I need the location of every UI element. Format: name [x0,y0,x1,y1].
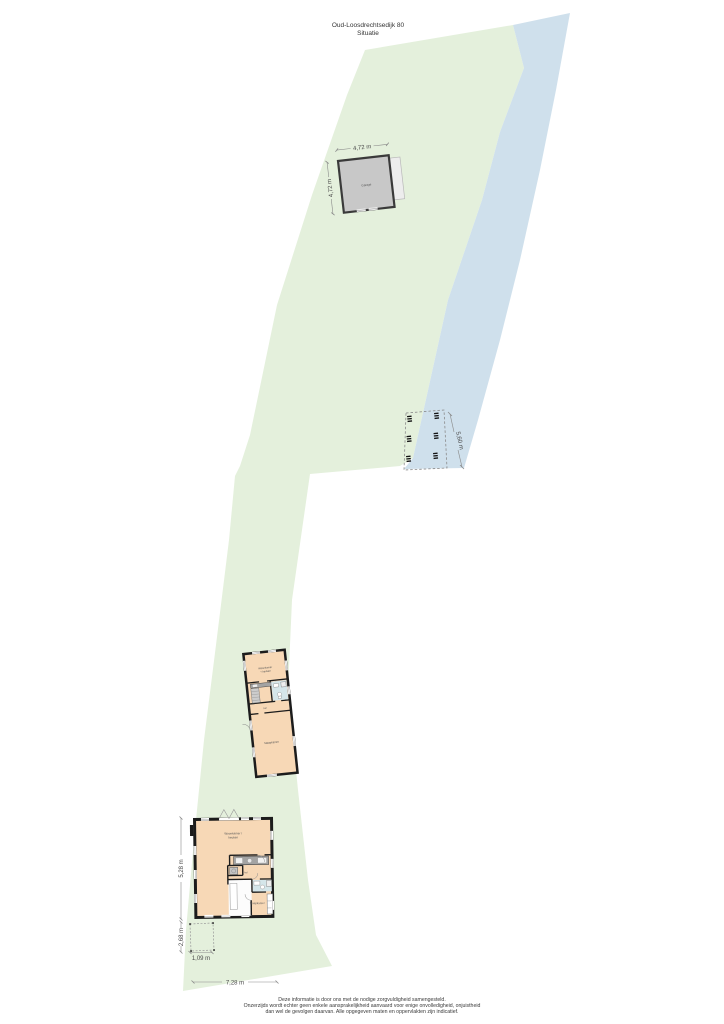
guest-bathroom [271,680,288,701]
main-house: Woonkamer / keuken hal Slaapkamer [190,809,274,918]
guest-bath-shower [281,682,286,687]
dim-side-label: 5,28 m [179,859,185,877]
terrace-dimension-bottom: 1,09 m [189,951,214,962]
kitchen-sink [236,858,243,864]
kitchen-counter [234,856,269,865]
bedroom-label: Slaapkamer [250,901,265,905]
living-room-label-2: keuken [228,835,238,839]
guest-stairs [251,688,260,703]
page-subtitle: Situatie [357,30,379,37]
main-bathroom [253,880,272,892]
bathroom-shower [266,880,271,886]
kitchen-stove [258,857,267,863]
disclaimer-line-3: dan wel de gevolgen daarvan. Alle opgege… [266,1009,459,1015]
terrace-dimension-side: 2,68 m [179,921,185,954]
utility-counter [230,883,237,909]
guest-kitchen-sink [252,684,257,687]
main-hall-label: hal [244,871,248,874]
washer-closet [230,867,238,874]
chimney [190,825,194,836]
situatie-page: Oud-Loosdrechtsedijk 80 Situatie 5,60 m [0,0,724,1024]
situatie-plan-drawing: Oud-Loosdrechtsedijk 80 Situatie 5,60 m [0,0,724,1024]
guest-bath-sink [273,683,278,687]
bathroom-toilet [260,885,264,889]
page-title: Oud-Loosdrechtsedijk 80 [332,22,405,29]
dim-terrace-side-label: 2,68 m [179,928,185,946]
bathroom-sink [254,881,260,885]
main-house-dimension-side: 5,28 m [179,817,185,921]
dim-bottom-label: 7,28 m [226,980,244,986]
dim-terrace-bottom-label: 1,09 m [192,956,210,962]
